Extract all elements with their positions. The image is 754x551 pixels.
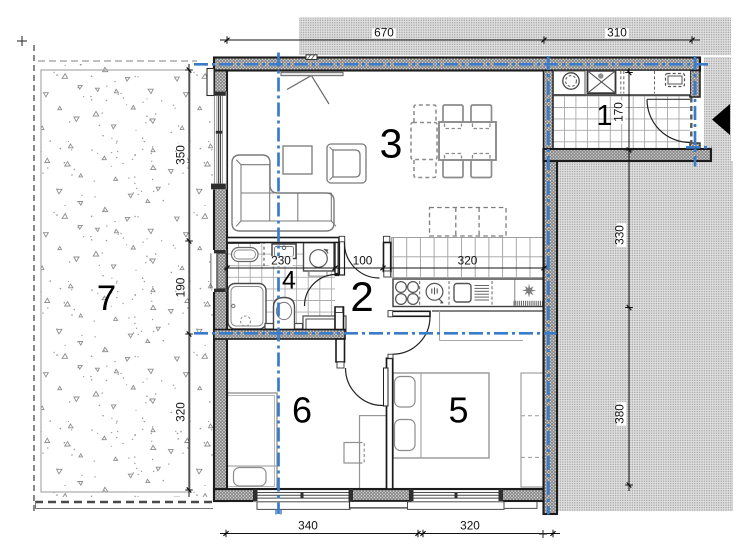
svg-text:340: 340 [298,519,318,533]
svg-text:380: 380 [613,404,627,424]
svg-text:3: 3 [380,121,403,167]
svg-text:5: 5 [448,390,468,431]
svg-text:2: 2 [350,273,373,320]
svg-text:330: 330 [613,225,627,245]
svg-text:190: 190 [174,277,188,297]
svg-text:1: 1 [596,100,612,132]
svg-text:6: 6 [292,390,312,431]
svg-text:7: 7 [97,279,116,318]
svg-text:320: 320 [458,254,478,268]
svg-text:350: 350 [174,145,188,165]
svg-text:320: 320 [174,402,188,422]
svg-text:310: 310 [607,26,627,40]
svg-text:320: 320 [460,519,480,533]
svg-text:100: 100 [353,254,373,268]
svg-text:4: 4 [282,267,296,295]
svg-text:230: 230 [271,254,291,268]
svg-text:170: 170 [612,102,626,122]
svg-text:670: 670 [374,26,394,40]
